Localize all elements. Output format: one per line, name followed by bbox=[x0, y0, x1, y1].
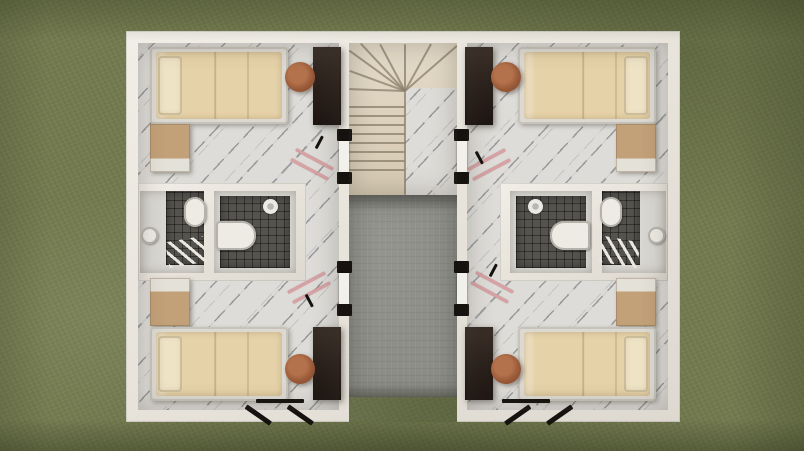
desk bbox=[313, 327, 341, 400]
courtyard-top-shadow bbox=[349, 195, 457, 211]
sink bbox=[141, 227, 158, 244]
stairwell-door-frame bbox=[337, 304, 352, 316]
stair-tread bbox=[349, 106, 405, 108]
stair-tread bbox=[349, 115, 405, 117]
courtyard-grass-gap bbox=[349, 397, 457, 422]
dresser bbox=[616, 278, 656, 326]
toilet bbox=[550, 221, 590, 250]
stairwell-door-leaf bbox=[457, 273, 467, 304]
dresser bbox=[150, 278, 190, 326]
stairwell-door-frame bbox=[337, 172, 352, 184]
stairwell-door-frame bbox=[337, 261, 352, 273]
courtyard-concrete bbox=[349, 195, 457, 397]
stairwell-door-frame bbox=[337, 129, 352, 141]
shower-head bbox=[263, 199, 278, 214]
stair-tread bbox=[349, 160, 405, 162]
sink bbox=[648, 227, 665, 244]
dresser bbox=[616, 124, 656, 172]
toilet bbox=[184, 197, 206, 227]
desk bbox=[465, 327, 493, 400]
floorplan-render-canvas bbox=[0, 0, 804, 451]
stairwell-door-leaf bbox=[339, 273, 349, 304]
bed-pillow bbox=[624, 336, 648, 392]
stair-winder-edge bbox=[404, 44, 406, 91]
shower-head bbox=[528, 199, 543, 214]
stairwell-door-leaf bbox=[457, 141, 467, 172]
stairwell-door-frame bbox=[454, 304, 469, 316]
stair-tread bbox=[349, 124, 405, 126]
chair bbox=[285, 62, 315, 92]
stairwell-door-frame bbox=[454, 261, 469, 273]
window-frame bbox=[502, 399, 550, 403]
chair bbox=[285, 354, 315, 384]
bed-pillow bbox=[158, 336, 182, 392]
dresser bbox=[150, 124, 190, 172]
bed-pillow bbox=[158, 56, 182, 115]
stair-tread bbox=[349, 151, 405, 153]
desk bbox=[313, 47, 341, 125]
chair bbox=[491, 354, 521, 384]
toilet bbox=[216, 221, 256, 250]
stair-tread bbox=[349, 169, 405, 171]
bed-pillow bbox=[624, 56, 648, 115]
stairwell-door-frame bbox=[454, 129, 469, 141]
toilet bbox=[600, 197, 622, 227]
stair-stringer bbox=[404, 90, 406, 195]
chair bbox=[491, 62, 521, 92]
stairwell-door-leaf bbox=[339, 141, 349, 172]
window-frame bbox=[256, 399, 304, 403]
courtyard-edge-shadow bbox=[349, 385, 457, 397]
stair-landing bbox=[405, 88, 457, 195]
stairwell-door-frame bbox=[454, 172, 469, 184]
stair-tread bbox=[349, 133, 405, 135]
desk bbox=[465, 47, 493, 125]
stair-tread bbox=[349, 142, 405, 144]
